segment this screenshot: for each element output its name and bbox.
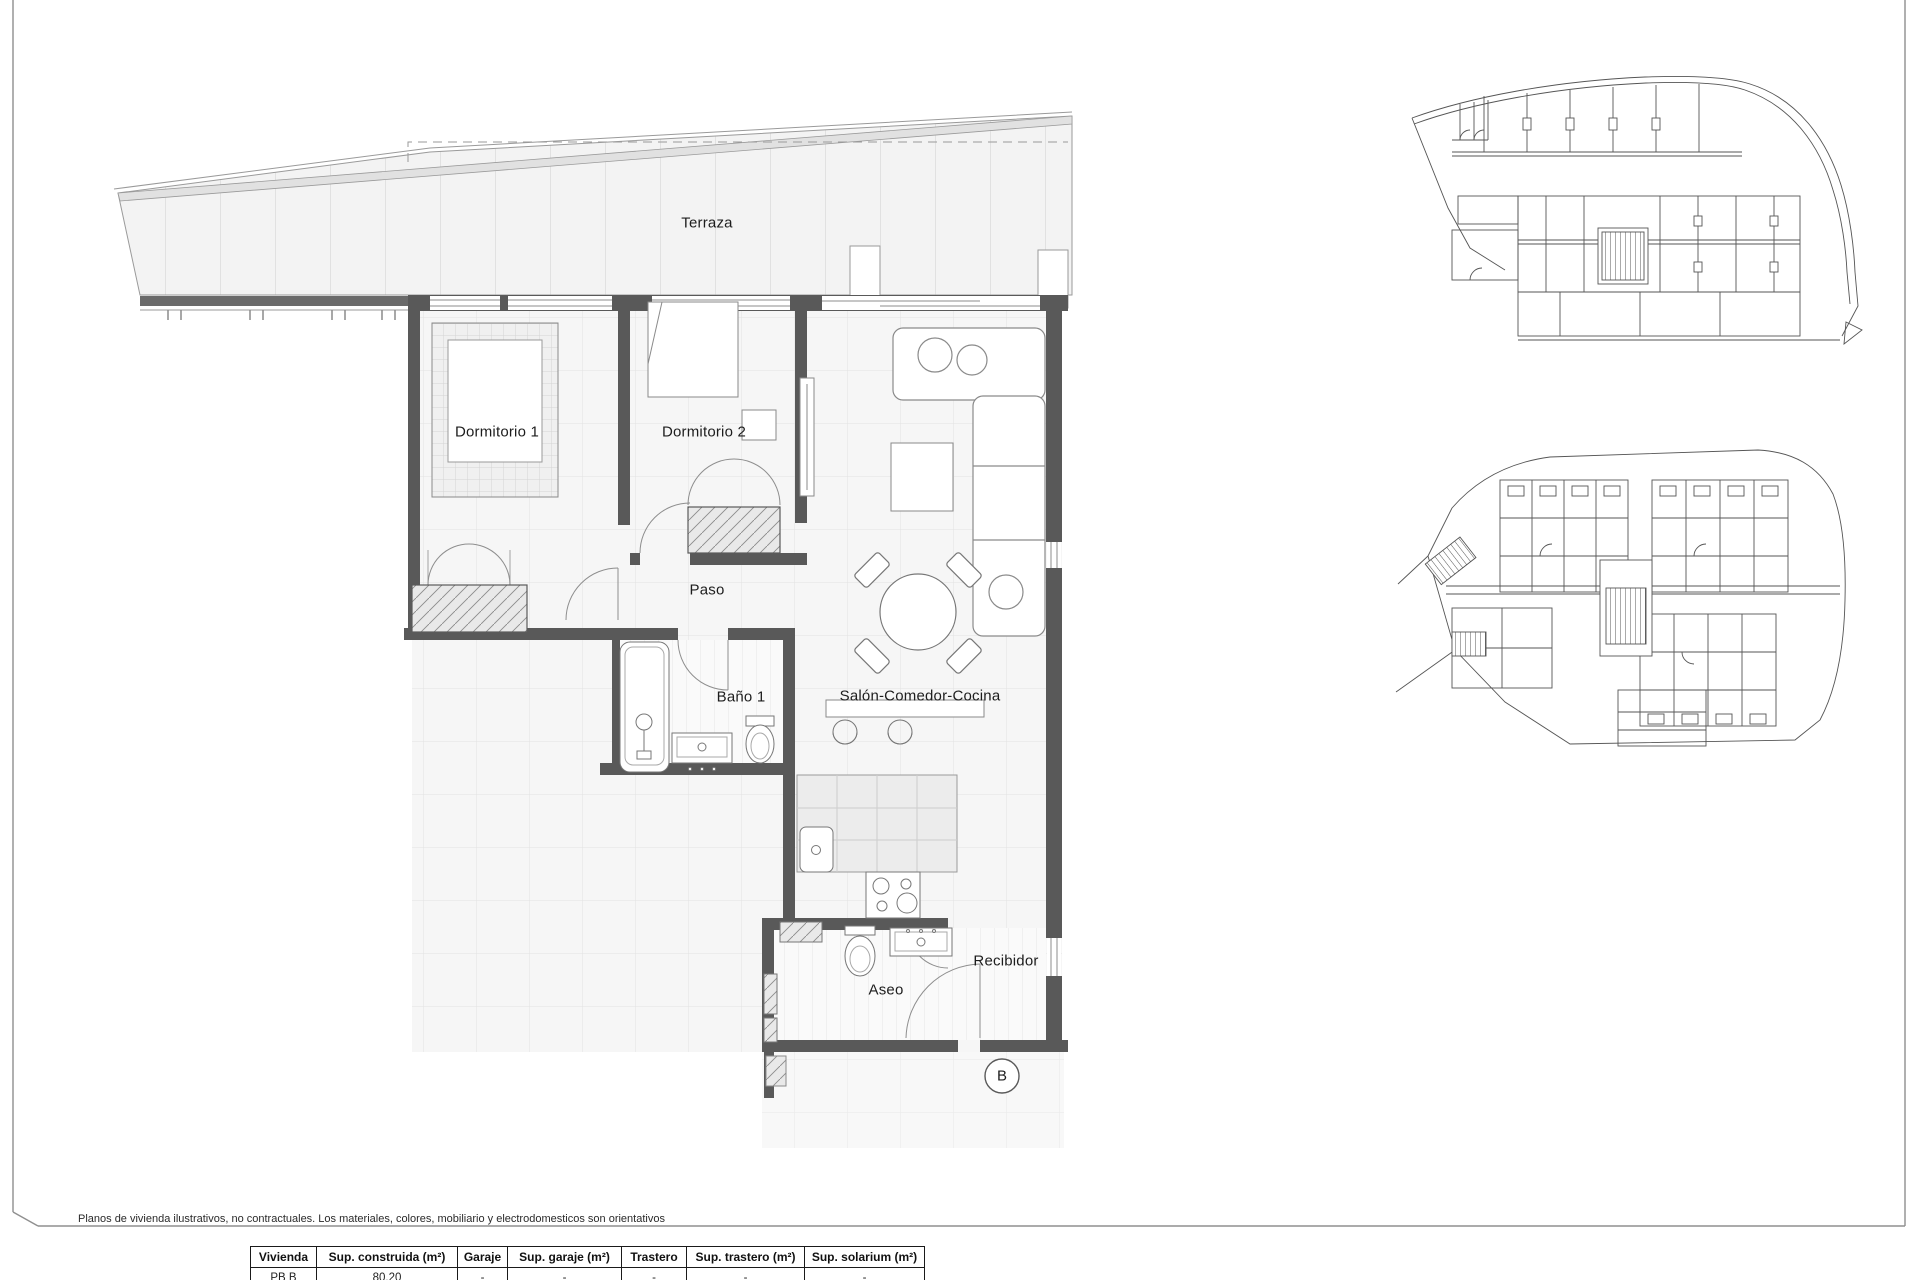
terrace-area	[114, 112, 1072, 320]
room-label-paso: Paso	[690, 582, 725, 599]
col-sup-garaje: Sup. garaje (m²)	[508, 1247, 622, 1268]
garage-plan	[1412, 76, 1862, 344]
cell-trastero: -	[622, 1268, 687, 1280]
cell-sup-trastero: -	[687, 1268, 805, 1280]
col-sup-solarium: Sup. solarium (m²)	[805, 1247, 925, 1268]
col-garaje: Garaje	[458, 1247, 508, 1268]
cell-sup-solarium: -	[805, 1268, 925, 1280]
room-label-dormitorio2: Dormitorio 2	[662, 424, 746, 441]
room-label-aseo: Aseo	[869, 982, 904, 999]
bed-dormitorio1	[432, 323, 558, 497]
col-sup-construida: Sup. construida (m²)	[317, 1247, 458, 1268]
plan-sheet: Terraza Dormitorio 1 Dormitorio 2 Paso B…	[0, 0, 1920, 1280]
coffee-table	[891, 443, 953, 511]
cell-vivienda: PB B	[251, 1268, 317, 1280]
col-sup-trastero: Sup. trastero (m²)	[687, 1247, 805, 1268]
surface-table: Vivienda Sup. construida (m²) Garaje Sup…	[250, 1246, 925, 1280]
room-label-terraza: Terraza	[681, 215, 732, 232]
room-label-recibidor: Recibidor	[973, 953, 1038, 970]
surface-table-header-row: Vivienda Sup. construida (m²) Garaje Sup…	[251, 1247, 925, 1268]
unit-marker: B	[997, 1068, 1007, 1085]
cell-sup-garaje: -	[508, 1268, 622, 1280]
floorplan-drawing	[0, 0, 1920, 1280]
tv-unit	[800, 378, 814, 496]
col-trastero: Trastero	[622, 1247, 687, 1268]
col-vivienda: Vivienda	[251, 1247, 317, 1268]
cell-garaje: -	[458, 1268, 508, 1280]
table-row: PB B 80.20 - - - - -	[251, 1268, 925, 1280]
cell-sup-construida: 80.20	[317, 1268, 458, 1280]
key-plan	[1396, 450, 1845, 746]
disclaimer-text: Planos de vivienda ilustrativos, no cont…	[78, 1213, 665, 1225]
room-label-salon: Salón-Comedor-Cocina	[840, 688, 1001, 705]
room-label-dormitorio1: Dormitorio 1	[455, 424, 539, 441]
room-label-bano1: Baño 1	[717, 689, 766, 706]
